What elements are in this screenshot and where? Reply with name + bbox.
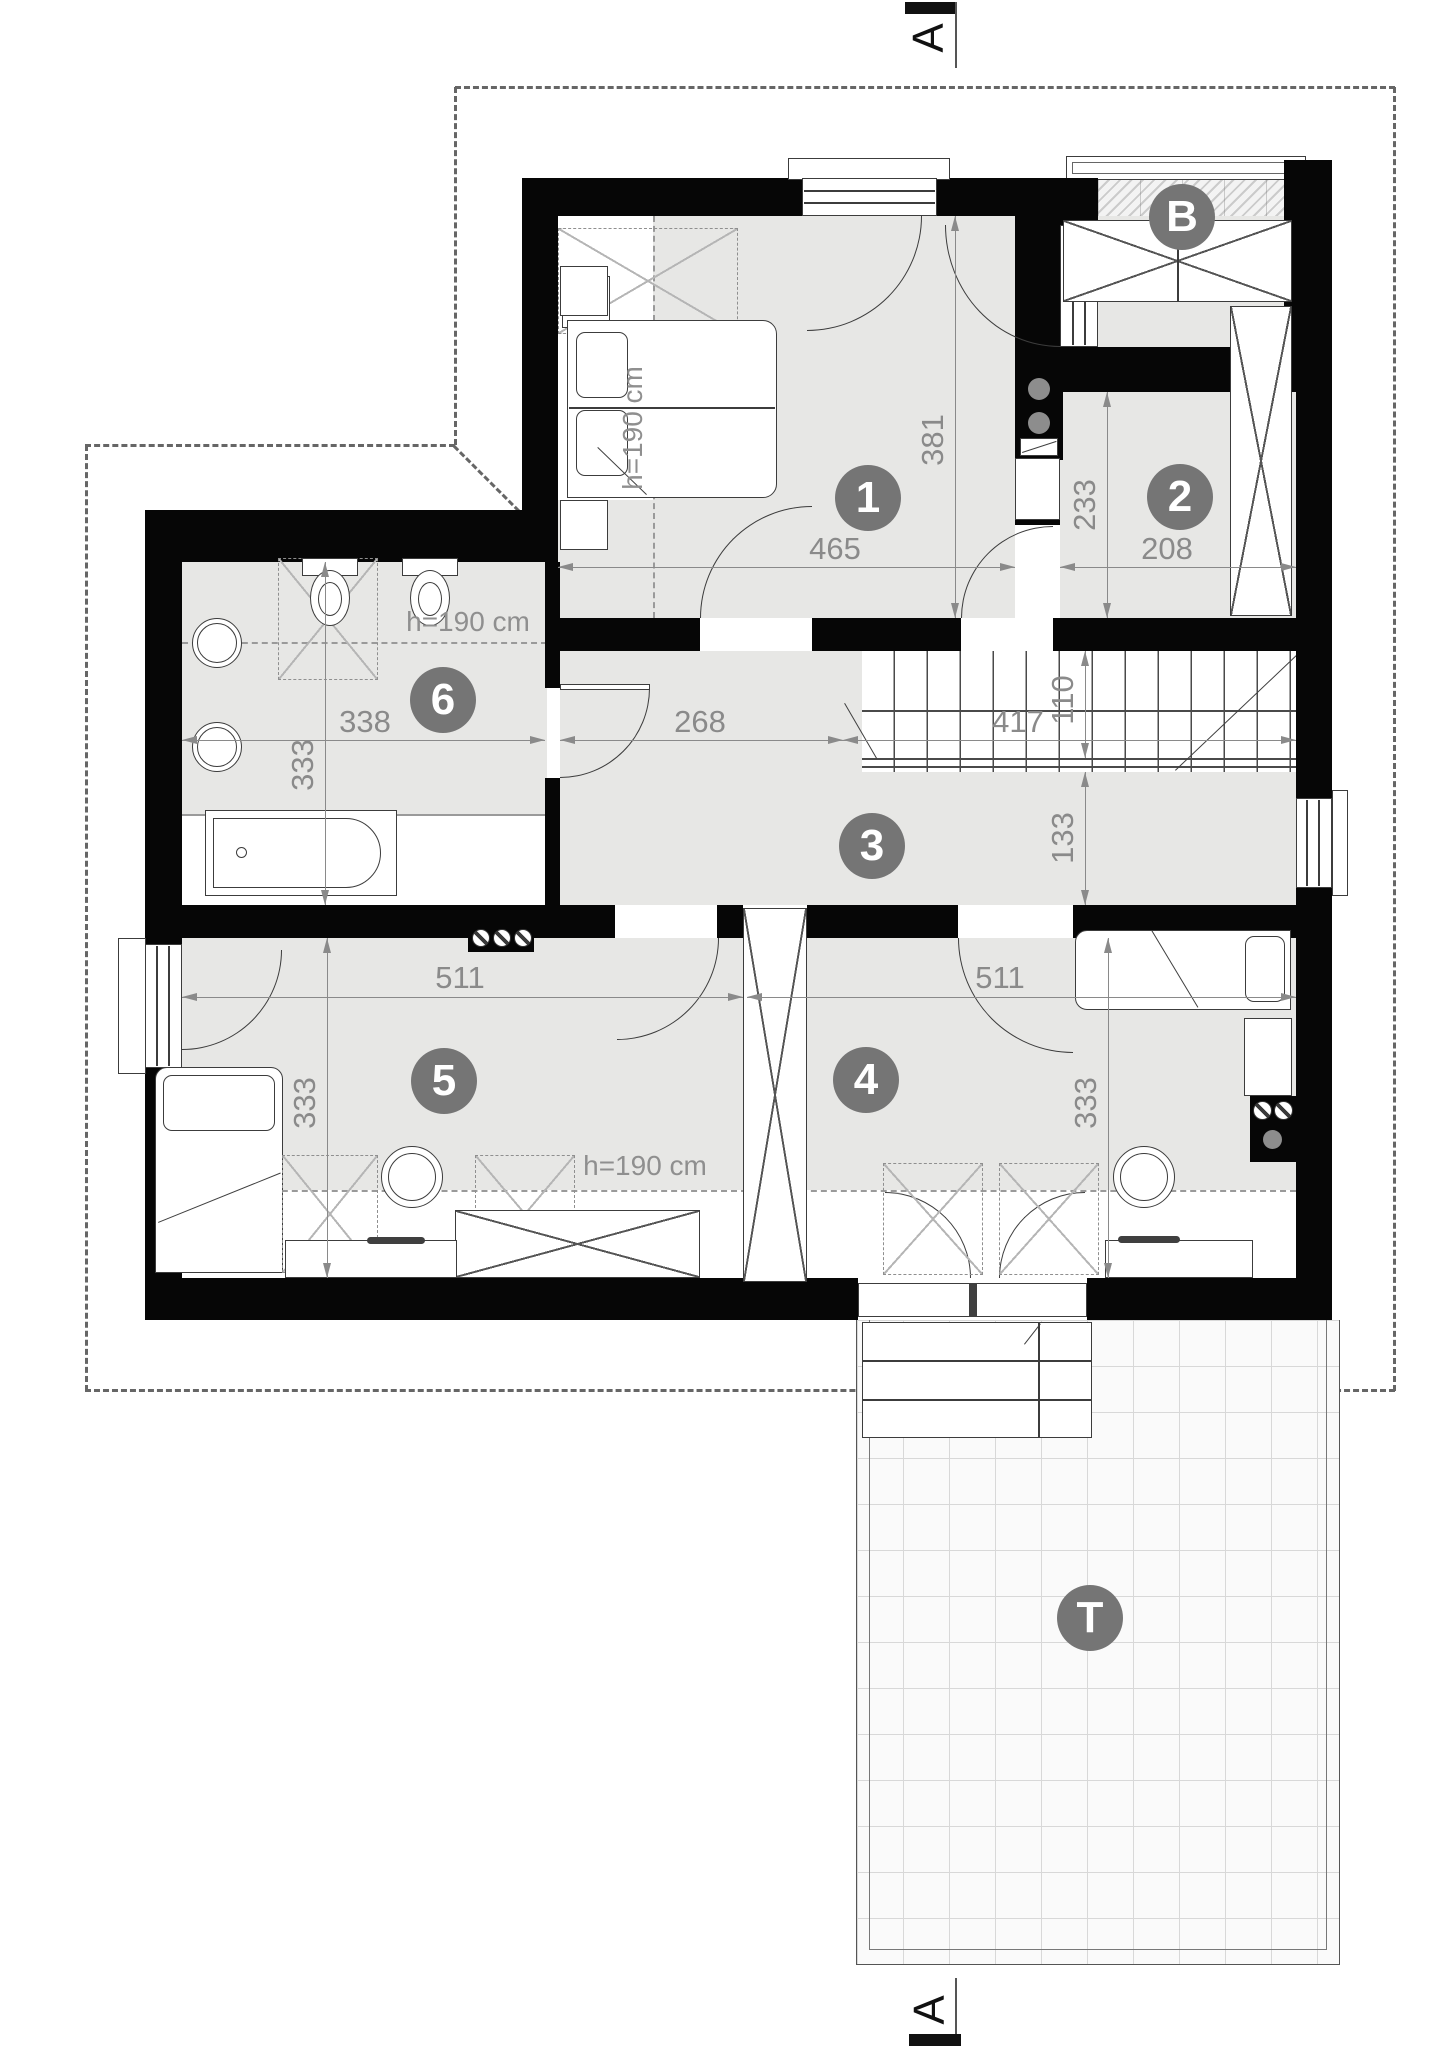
dim-room4-width: 511: [975, 960, 1024, 996]
room4-desk-drawer: [1118, 1236, 1180, 1243]
dim-line-stairs-length: [843, 740, 1296, 741]
rooms45-divider-wardrobe: [743, 908, 807, 1282]
wall-hall-south-b: [717, 905, 743, 938]
rooms45-height-label: h=190 cm: [583, 1150, 707, 1182]
wall-room1-bottom-b: [812, 618, 961, 651]
window-right-pane-2: [1318, 800, 1320, 886]
dim-line-room1-width: [558, 567, 1015, 568]
staircase-edge-line-2: [862, 766, 1296, 768]
room4-badge: 4: [833, 1047, 899, 1113]
window-right-sill: [1332, 790, 1348, 896]
section-marker-top-bar: [905, 2, 957, 14]
section-marker-bottom-bar: [909, 2034, 961, 2046]
wall-bottom-right: [1087, 1278, 1332, 1320]
window-left-pane-1: [156, 946, 158, 1066]
wall-left-upper-block: [522, 178, 558, 562]
room1-nightstand-2: [560, 500, 608, 550]
section-marker-top-line: [955, 2, 957, 68]
window-top: [802, 178, 937, 216]
room1-badge: 1: [835, 465, 901, 531]
section-marker-bottom-label: A: [905, 1995, 955, 2024]
wall-hall-south-c: [807, 905, 958, 938]
room6-badge: 6: [410, 667, 476, 733]
room1-height-label: h=190 cm: [617, 366, 649, 490]
balcony-badge: B: [1149, 184, 1215, 250]
room2-wall-niche: [1015, 458, 1060, 520]
room5-wardrobe: [455, 1210, 700, 1278]
wall-bottom-left: [145, 1278, 858, 1320]
vent-room5-flue-2: [493, 929, 511, 947]
dim-hall-width: 268: [674, 704, 726, 740]
dim-room1-width: 465: [809, 531, 861, 567]
dim-room1-depth: 381: [915, 414, 951, 466]
dim-room2-width: 208: [1141, 531, 1193, 567]
dim-room2-depth: 233: [1067, 479, 1103, 531]
dim-bathroom-width: 338: [339, 704, 391, 740]
window-left: [145, 944, 182, 1068]
roof-outline-chamfer: [453, 445, 520, 512]
dim-line-room2-depth: [1107, 392, 1108, 618]
terrace-door-center-post: [969, 1283, 977, 1317]
dim-line-bathroom-depth: [325, 562, 326, 905]
room2-badge: 2: [1147, 464, 1213, 530]
dim-line-room5-depth: [327, 938, 328, 1278]
dim-line-room2-width: [1060, 567, 1296, 568]
room4-wardrobe-dashed-1: [883, 1163, 983, 1275]
dim-line-room5-width: [182, 997, 743, 998]
room5-badge: 5: [411, 1048, 477, 1114]
dim-line-hall-width: [560, 740, 843, 741]
dim-stairs-width: 110: [1045, 675, 1081, 724]
room4-wardrobe-dashed-2: [999, 1163, 1099, 1275]
room1-bed-center-line: [569, 407, 775, 409]
dim-line-bathroom-width: [182, 740, 545, 741]
wall-hall-south-a: [145, 905, 615, 938]
dim-line-room4-depth: [1108, 938, 1109, 1278]
dim-bathroom-depth: 333: [285, 739, 321, 791]
dim-room4-depth: 333: [1068, 1077, 1104, 1129]
wall-bathroom-top: [145, 510, 558, 562]
chimney-room4-flue-3: [1263, 1130, 1282, 1149]
chimney-room1-flue-1: [1028, 378, 1050, 400]
terrace-badge: T: [1057, 1585, 1123, 1651]
room5-pillow: [163, 1075, 275, 1131]
window-top-pane-line-2: [804, 202, 935, 204]
room5-chair-back: [388, 1153, 436, 1201]
chimney-room4-flue-2: [1274, 1101, 1293, 1120]
room4-desk-bottom: [1105, 1240, 1253, 1278]
wall-balcony-left-stub-top: [1060, 178, 1098, 225]
dim-room5-width: 511: [435, 960, 484, 996]
dim-line-stairs-width: [1085, 651, 1086, 758]
room3-badge: 3: [839, 813, 905, 879]
wall-left-1: [145, 510, 182, 944]
toilet-1-bowl-inner: [318, 582, 342, 616]
room5-desk: [285, 1240, 457, 1278]
terrace-step-line-1: [863, 1360, 1091, 1362]
staircase-edge-line-1: [862, 758, 1296, 760]
wall-room1-bottom-a: [545, 618, 700, 651]
wall-room2-bottom: [1053, 618, 1296, 651]
wall-right-lower: [1296, 888, 1332, 1320]
room4-desk-right: [1244, 1018, 1292, 1096]
bathroom-height-label: h=190 cm: [406, 606, 530, 638]
terrace-step-line-2: [863, 1399, 1091, 1401]
washbasin-2-inner: [197, 727, 237, 767]
roof-outline-right: [1393, 87, 1396, 1391]
room5-desk-drawer: [367, 1237, 425, 1244]
section-marker-top-label: A: [904, 23, 954, 52]
roof-outline-top: [455, 86, 1395, 89]
terrace-steps: [862, 1322, 1092, 1438]
dim-line-room4-width: [747, 997, 1296, 998]
window-right: [1296, 798, 1332, 888]
roof-outline-left: [85, 445, 88, 1391]
wall-right-upper: [1296, 392, 1332, 798]
room4-pillow: [1245, 936, 1285, 1002]
window-left-pane-2: [168, 946, 170, 1066]
window-sill-top: [788, 158, 950, 180]
terrace-step-side-line: [1038, 1323, 1040, 1437]
dim-stairs-to-wall: 133: [1045, 812, 1081, 864]
dim-stairs-length: 417: [992, 704, 1044, 740]
vent-room5-flue-3: [514, 929, 532, 947]
balcony-railing-inner: [1072, 162, 1300, 174]
roof-outline-step-h: [85, 444, 455, 447]
window-top-pane-line-1: [804, 190, 935, 192]
washbasin-1-inner: [197, 623, 237, 663]
floor-plan-canvas: 465 208 381 233 268 417 110 133 338 333 …: [0, 0, 1449, 2048]
chimney-room1-flue-2: [1028, 412, 1050, 434]
bathtub-drain: [236, 847, 247, 858]
room1-nightstand-1: [560, 266, 608, 316]
dim-room5-depth: 333: [287, 1077, 323, 1129]
window-right-pane-1: [1306, 800, 1308, 886]
roof-outline-step-v: [454, 87, 457, 445]
dim-line-room1-depth: [955, 216, 956, 618]
vent-room5-flue-1: [472, 929, 490, 947]
room4-chair-back: [1120, 1153, 1168, 1201]
chimney-room4-flue-1: [1253, 1101, 1272, 1120]
window-left-sill: [118, 938, 146, 1074]
dim-line-stairs-to-wall: [1085, 772, 1086, 905]
